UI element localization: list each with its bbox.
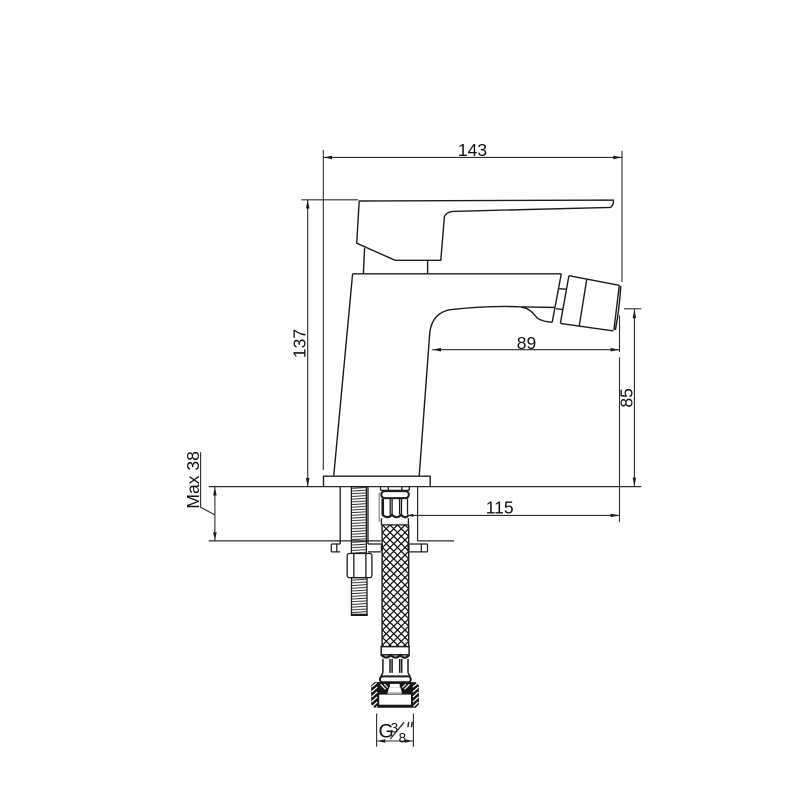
svg-text:8: 8 bbox=[399, 730, 407, 745]
svg-text:3: 3 bbox=[391, 721, 399, 736]
svg-text:Max 38: Max 38 bbox=[183, 451, 203, 508]
svg-text:115: 115 bbox=[486, 498, 514, 518]
svg-text:143: 143 bbox=[458, 140, 487, 160]
svg-text:137: 137 bbox=[290, 329, 310, 358]
svg-text:85: 85 bbox=[616, 388, 636, 407]
svg-text:89: 89 bbox=[517, 333, 536, 353]
